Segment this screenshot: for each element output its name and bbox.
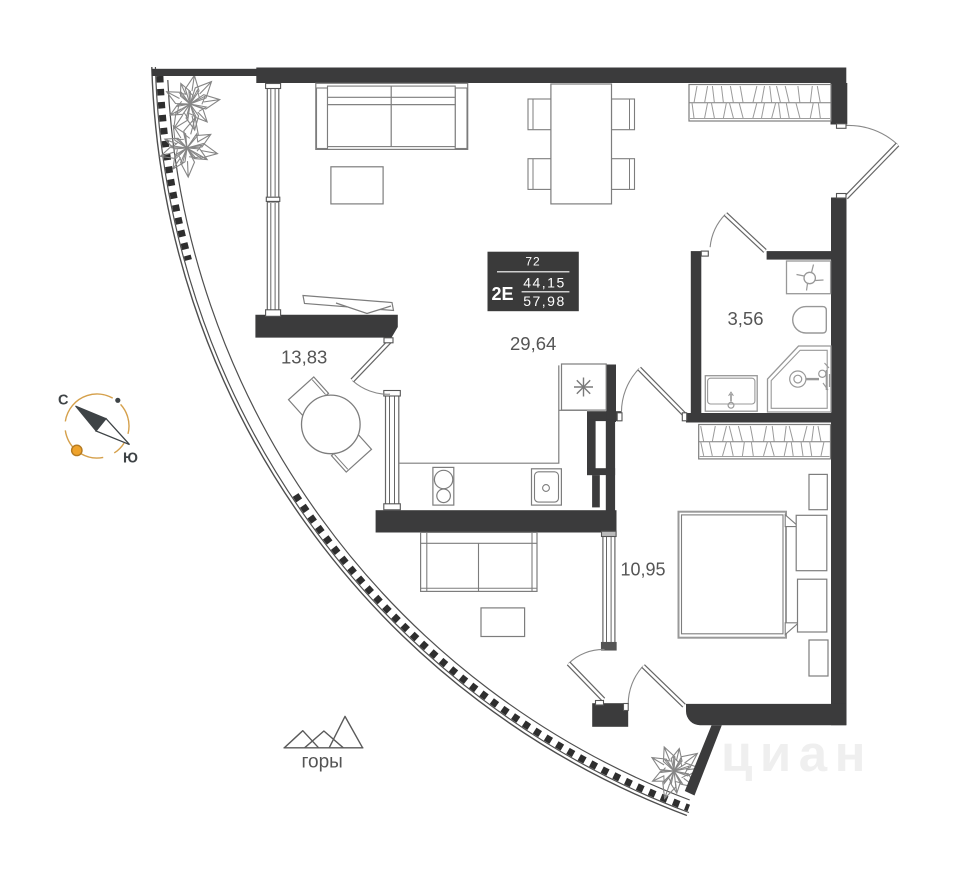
svg-text:44,15: 44,15 <box>523 275 566 291</box>
svg-text:29,64: 29,64 <box>510 333 556 354</box>
svg-text:72: 72 <box>525 255 540 269</box>
svg-text:Ю: Ю <box>123 451 138 467</box>
svg-text:3,56: 3,56 <box>728 308 764 329</box>
svg-text:горы: горы <box>302 752 343 773</box>
svg-text:С: С <box>58 393 69 409</box>
svg-text:13,83: 13,83 <box>281 347 327 368</box>
svg-text:2Е: 2Е <box>492 284 514 304</box>
svg-text:10,95: 10,95 <box>621 560 666 580</box>
svg-text:57,98: 57,98 <box>523 293 566 309</box>
svg-text:циан: циан <box>721 725 873 782</box>
